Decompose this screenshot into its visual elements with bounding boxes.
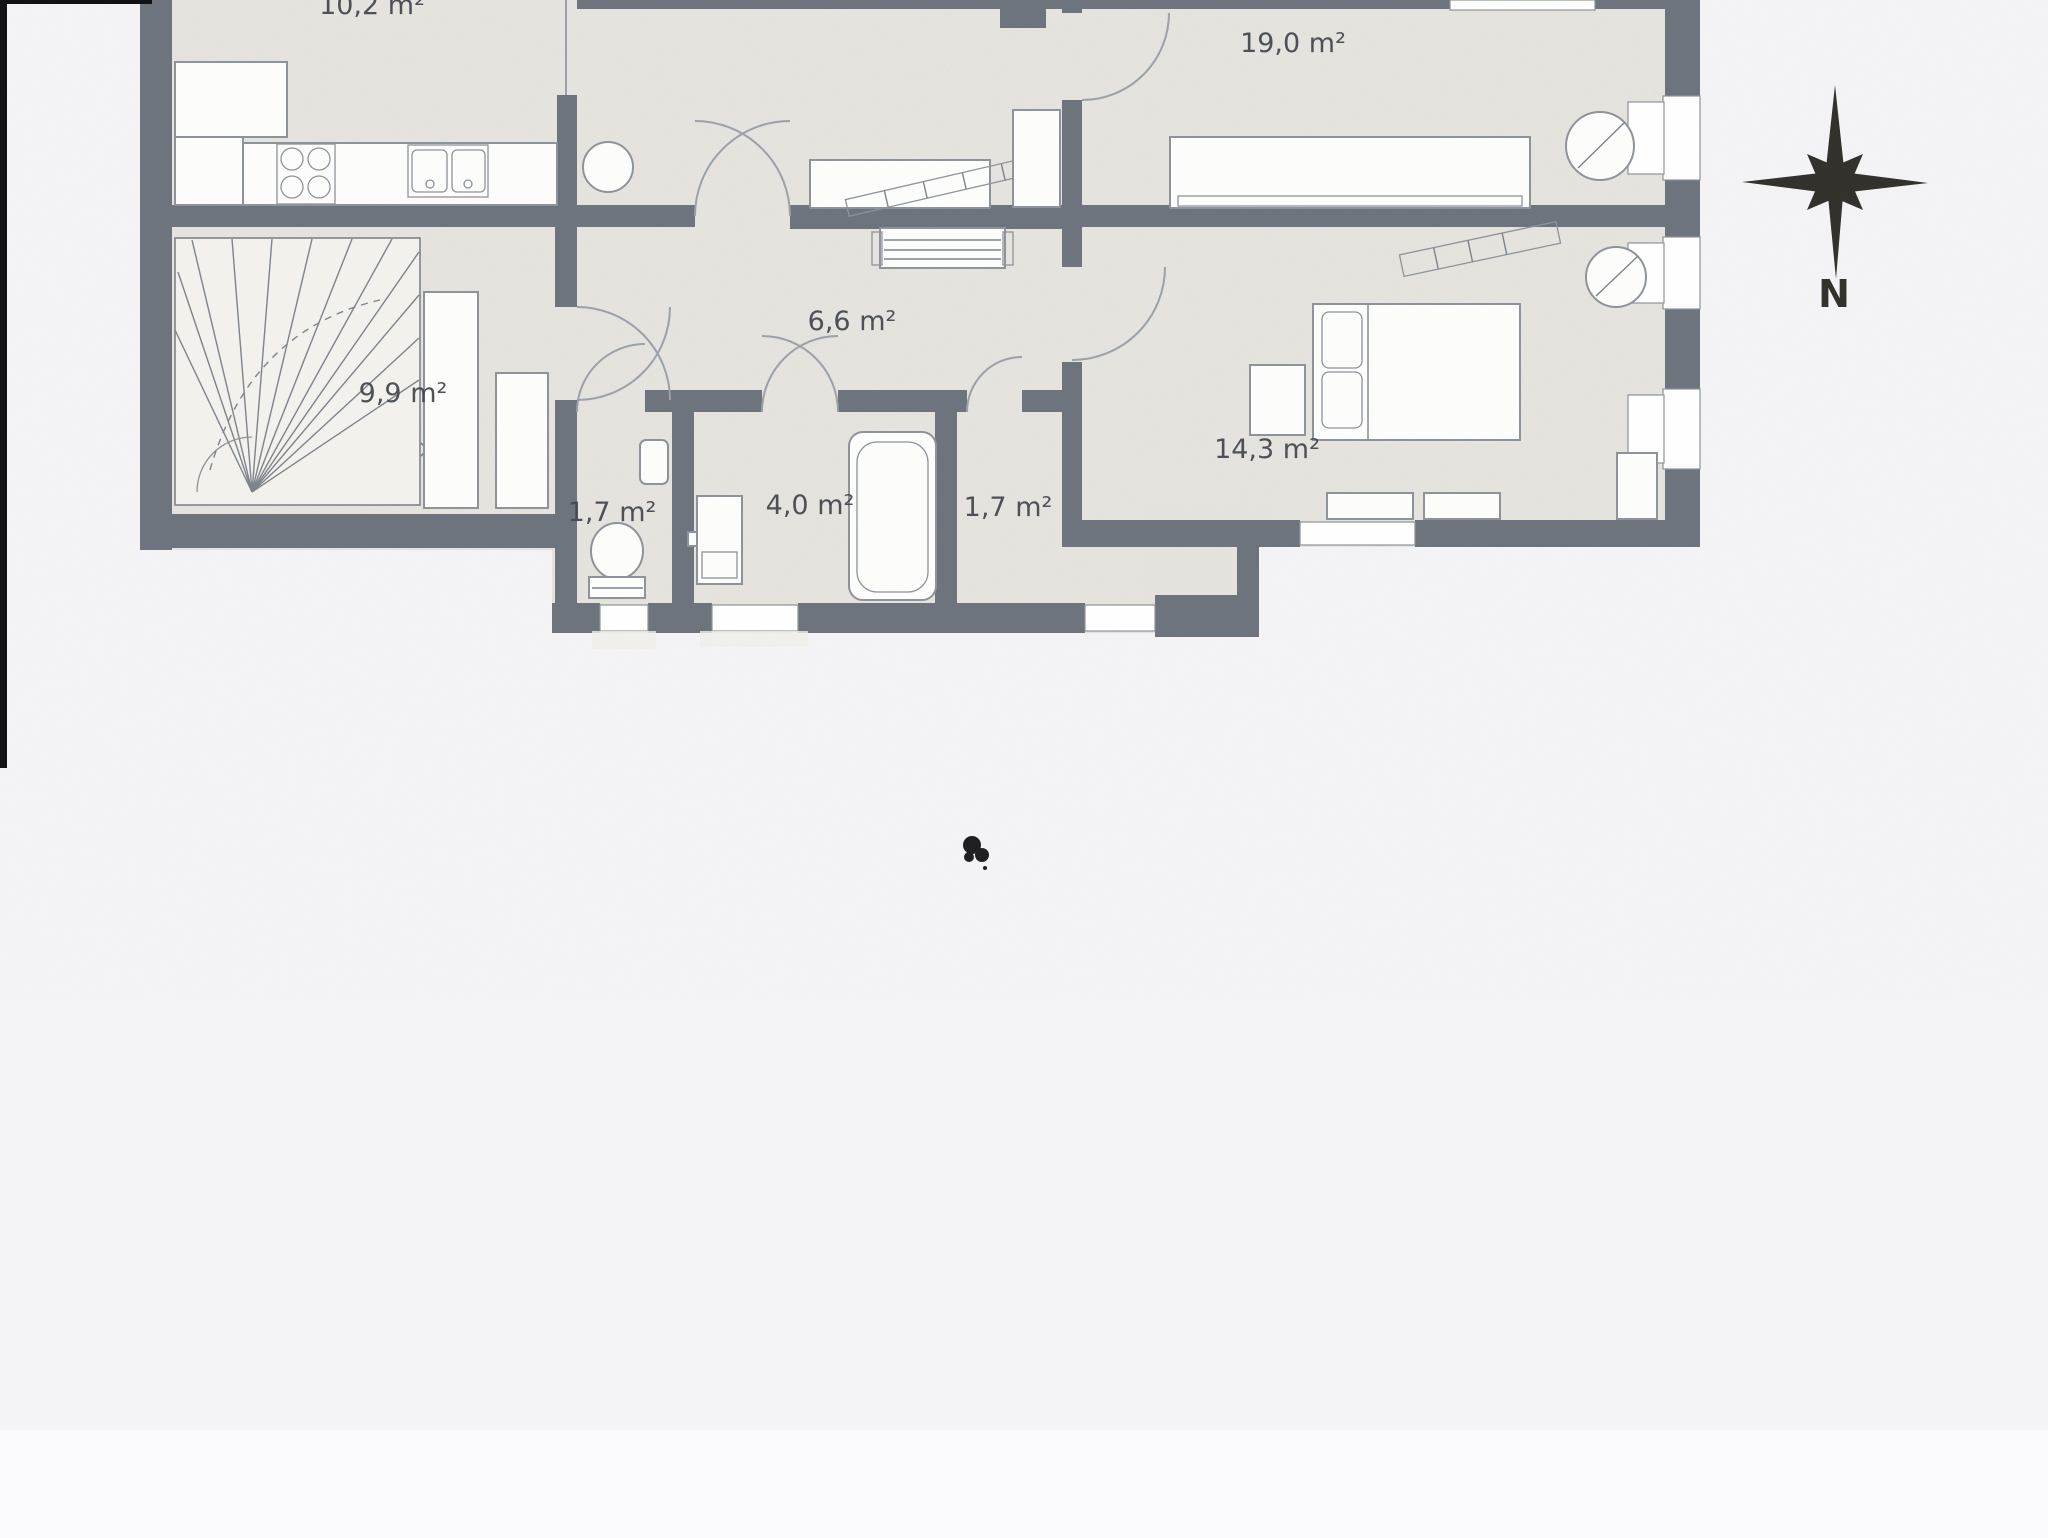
scan-grain-page xyxy=(0,0,2048,1000)
scanned-floor-plan-page: 10,2 m² 19,0 m² 6,6 m² 9,9 m² 1,7 m² 4,0… xyxy=(0,0,2048,1538)
scan-artifacts xyxy=(0,0,2048,1000)
floor-plan-drawing: 10,2 m² 19,0 m² 6,6 m² 9,9 m² 1,7 m² 4,0… xyxy=(0,0,2048,1538)
